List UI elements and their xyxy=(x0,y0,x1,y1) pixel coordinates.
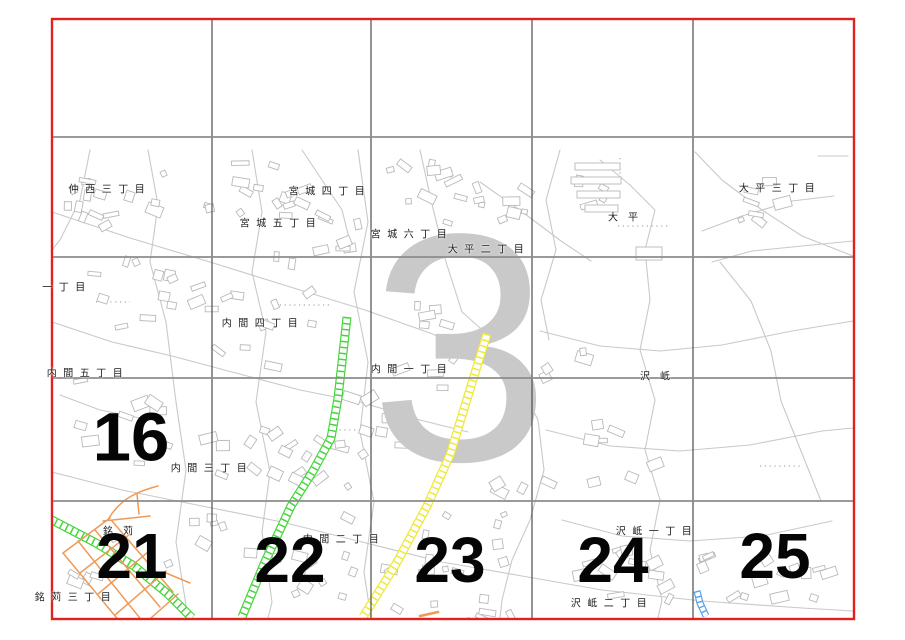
planned-road-blue xyxy=(697,591,706,616)
map-label: 沢岻 xyxy=(640,368,680,383)
sheet-number-21: 21 xyxy=(96,524,167,588)
sheet-watermark-number: 3 xyxy=(370,166,551,529)
map-label: 内間一丁目 xyxy=(371,361,454,376)
map-label: 宮城五丁目 xyxy=(240,215,323,230)
map-label: 内間四丁目 xyxy=(222,315,305,330)
map-label: 宮城四丁目 xyxy=(289,183,372,198)
map-label: 内間三丁目 xyxy=(171,460,254,475)
sheet-number-16: 16 xyxy=(93,402,170,471)
map-label: 内間五丁目 xyxy=(47,365,130,380)
map-label: 大平三丁目 xyxy=(739,180,822,195)
map-index-sheet: 3 xyxy=(0,0,905,640)
sheet-number-24: 24 xyxy=(577,528,648,592)
map-label: 仲西三丁目 xyxy=(69,181,152,196)
sheet-number-22: 22 xyxy=(254,528,325,592)
sheet-number-25: 25 xyxy=(739,524,810,588)
map-label: 大平 xyxy=(608,209,648,224)
map-label: 一丁目 xyxy=(42,279,92,294)
map-label: 沢岻二丁目 xyxy=(571,595,654,610)
map-label: 宮城六丁目 xyxy=(371,226,454,241)
sheet-number-23: 23 xyxy=(414,528,485,592)
map-label: 大平二丁目 xyxy=(448,241,531,256)
